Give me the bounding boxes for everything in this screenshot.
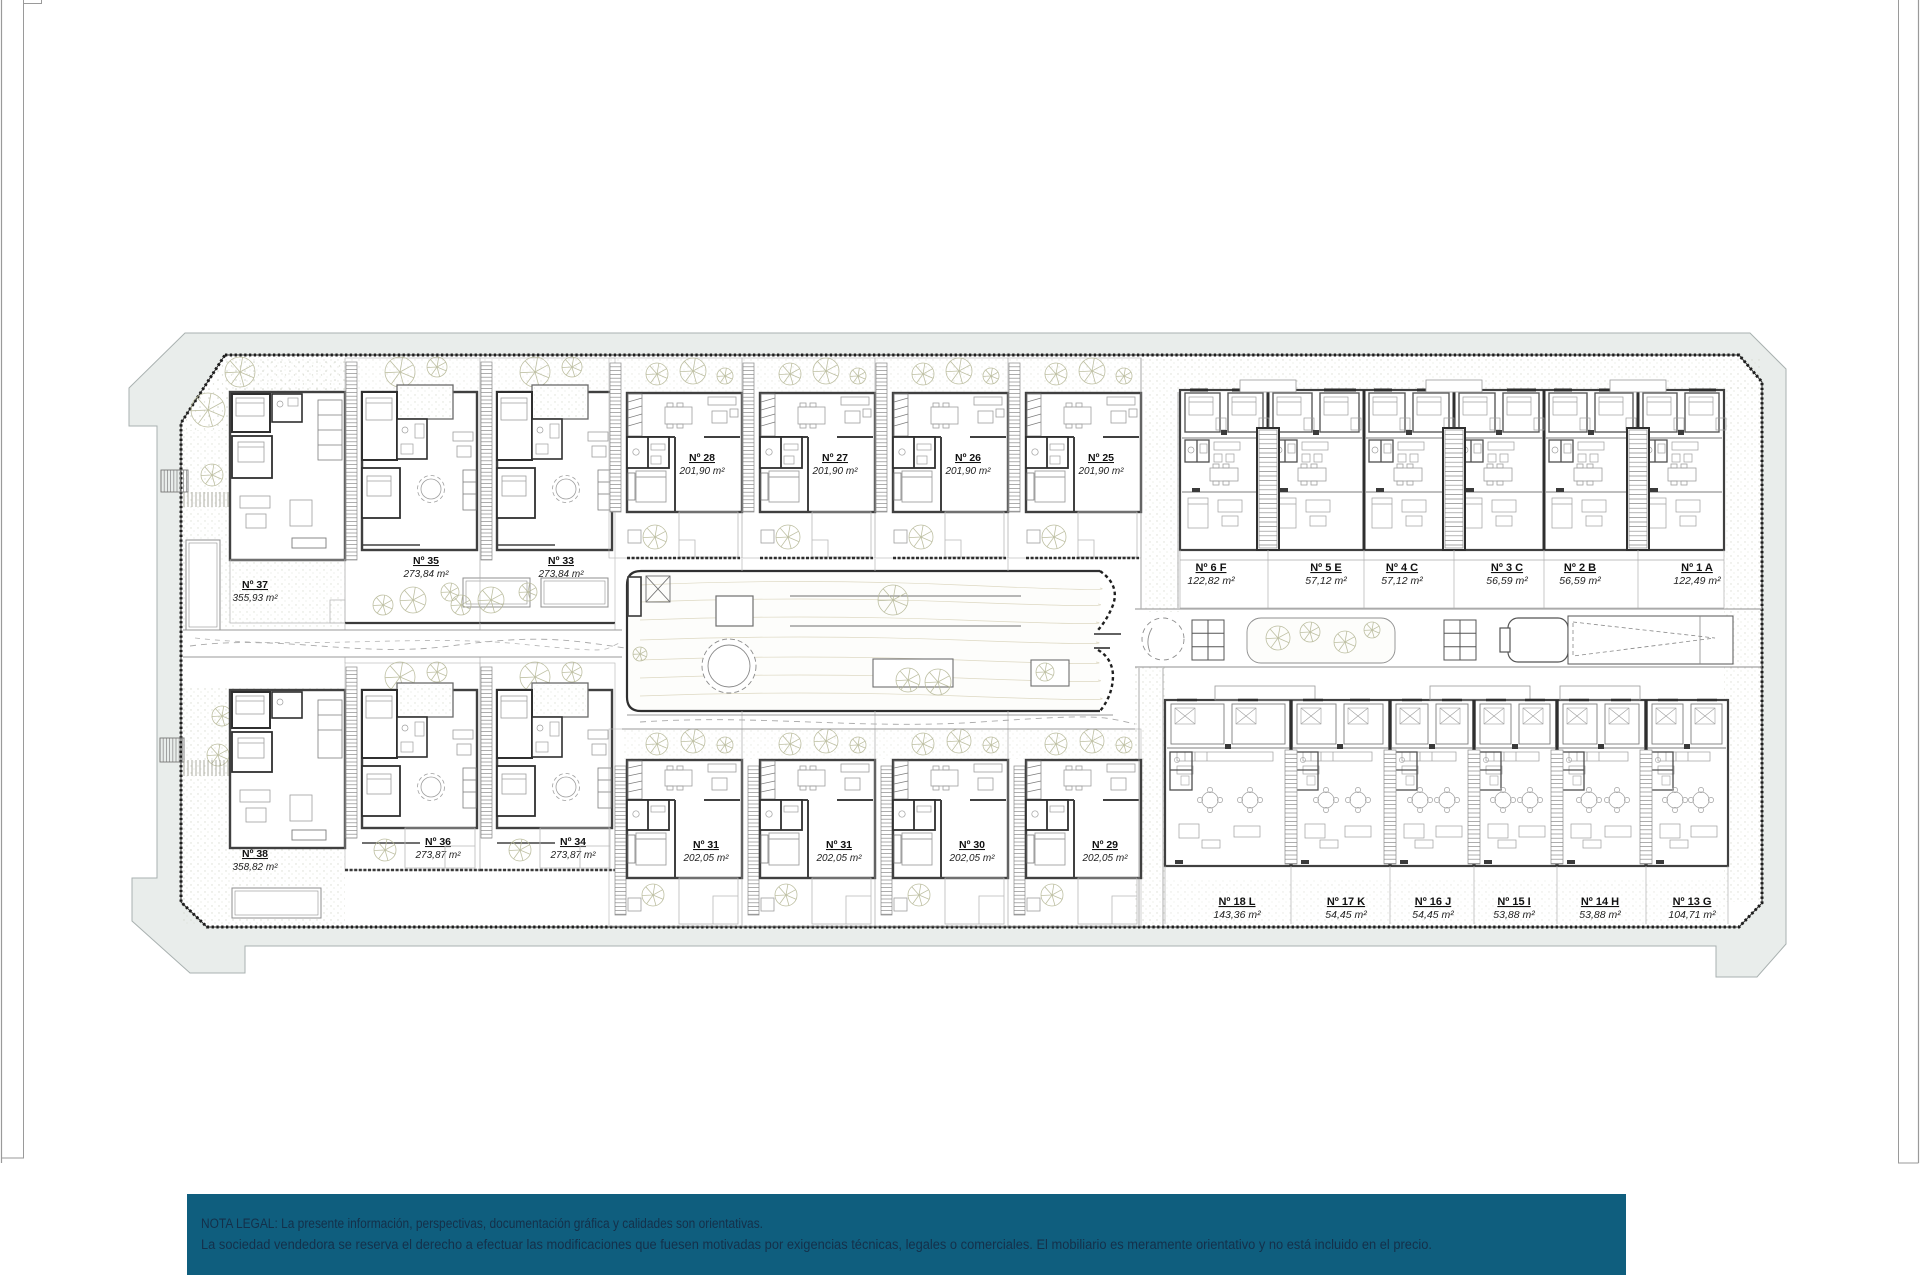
svg-text:Nº 4 C: Nº 4 C: [1386, 562, 1418, 574]
svg-text:56,59 m²: 56,59 m²: [1559, 575, 1601, 587]
svg-text:Nº 16 J: Nº 16 J: [1415, 896, 1451, 908]
svg-text:122,82 m²: 122,82 m²: [1187, 575, 1235, 587]
svg-text:355,93 m²: 355,93 m²: [232, 593, 278, 604]
svg-text:NOTA LEGAL: La presente inform: NOTA LEGAL: La presente información, per…: [201, 1216, 763, 1231]
svg-text:Nº 28: Nº 28: [689, 452, 715, 464]
svg-text:273,87 m²: 273,87 m²: [549, 850, 596, 861]
svg-text:202,05 m²: 202,05 m²: [682, 853, 729, 864]
svg-text:54,45 m²: 54,45 m²: [1325, 909, 1367, 921]
svg-text:57,12 m²: 57,12 m²: [1305, 575, 1347, 587]
svg-text:Nº 31: Nº 31: [826, 839, 852, 851]
svg-text:202,05 m²: 202,05 m²: [815, 853, 862, 864]
svg-text:Nº 25: Nº 25: [1088, 452, 1114, 464]
svg-text:53,88 m²: 53,88 m²: [1579, 909, 1621, 921]
svg-text:53,88 m²: 53,88 m²: [1493, 909, 1535, 921]
svg-text:273,84 m²: 273,84 m²: [402, 569, 449, 580]
svg-text:201,90 m²: 201,90 m²: [678, 466, 725, 477]
svg-text:Nº 15 I: Nº 15 I: [1497, 896, 1530, 908]
svg-text:Nº 30: Nº 30: [959, 839, 985, 851]
svg-text:104,71 m²: 104,71 m²: [1668, 909, 1716, 921]
svg-text:Nº 29: Nº 29: [1092, 839, 1118, 851]
svg-text:Nº 18 L: Nº 18 L: [1218, 896, 1255, 908]
svg-text:273,87 m²: 273,87 m²: [414, 850, 461, 861]
svg-text:Nº 33: Nº 33: [548, 555, 574, 567]
svg-text:201,90 m²: 201,90 m²: [1077, 466, 1124, 477]
svg-text:Nº 2 B: Nº 2 B: [1564, 562, 1596, 574]
svg-text:La sociedad vendedora se reser: La sociedad vendedora se reserva el dere…: [201, 1237, 1432, 1252]
svg-text:Nº 5 E: Nº 5 E: [1310, 562, 1342, 574]
svg-text:122,49 m²: 122,49 m²: [1673, 575, 1721, 587]
svg-text:Nº 26: Nº 26: [955, 452, 981, 464]
svg-text:201,90 m²: 201,90 m²: [811, 466, 858, 477]
svg-text:202,05 m²: 202,05 m²: [1081, 853, 1128, 864]
svg-text:Nº 3 C: Nº 3 C: [1491, 562, 1523, 574]
svg-text:Nº 37: Nº 37: [242, 579, 268, 591]
svg-text:201,90 m²: 201,90 m²: [944, 466, 991, 477]
svg-text:Nº 13 G: Nº 13 G: [1673, 896, 1712, 908]
svg-text:202,05 m²: 202,05 m²: [948, 853, 995, 864]
svg-text:Nº 17 K: Nº 17 K: [1327, 896, 1365, 908]
svg-text:Nº 27: Nº 27: [822, 452, 848, 464]
svg-text:57,12 m²: 57,12 m²: [1381, 575, 1423, 587]
svg-text:Nº 6 F: Nº 6 F: [1196, 562, 1227, 574]
svg-text:Nº 35: Nº 35: [413, 555, 439, 567]
svg-text:Nº 14 H: Nº 14 H: [1581, 896, 1619, 908]
svg-text:Nº 1 A: Nº 1 A: [1681, 562, 1713, 574]
svg-text:Nº 31: Nº 31: [693, 839, 719, 851]
svg-text:Nº 38: Nº 38: [242, 848, 268, 860]
svg-text:56,59 m²: 56,59 m²: [1486, 575, 1528, 587]
svg-text:143,36 m²: 143,36 m²: [1213, 909, 1261, 921]
svg-text:358,82 m²: 358,82 m²: [232, 862, 278, 873]
svg-text:54,45 m²: 54,45 m²: [1412, 909, 1454, 921]
